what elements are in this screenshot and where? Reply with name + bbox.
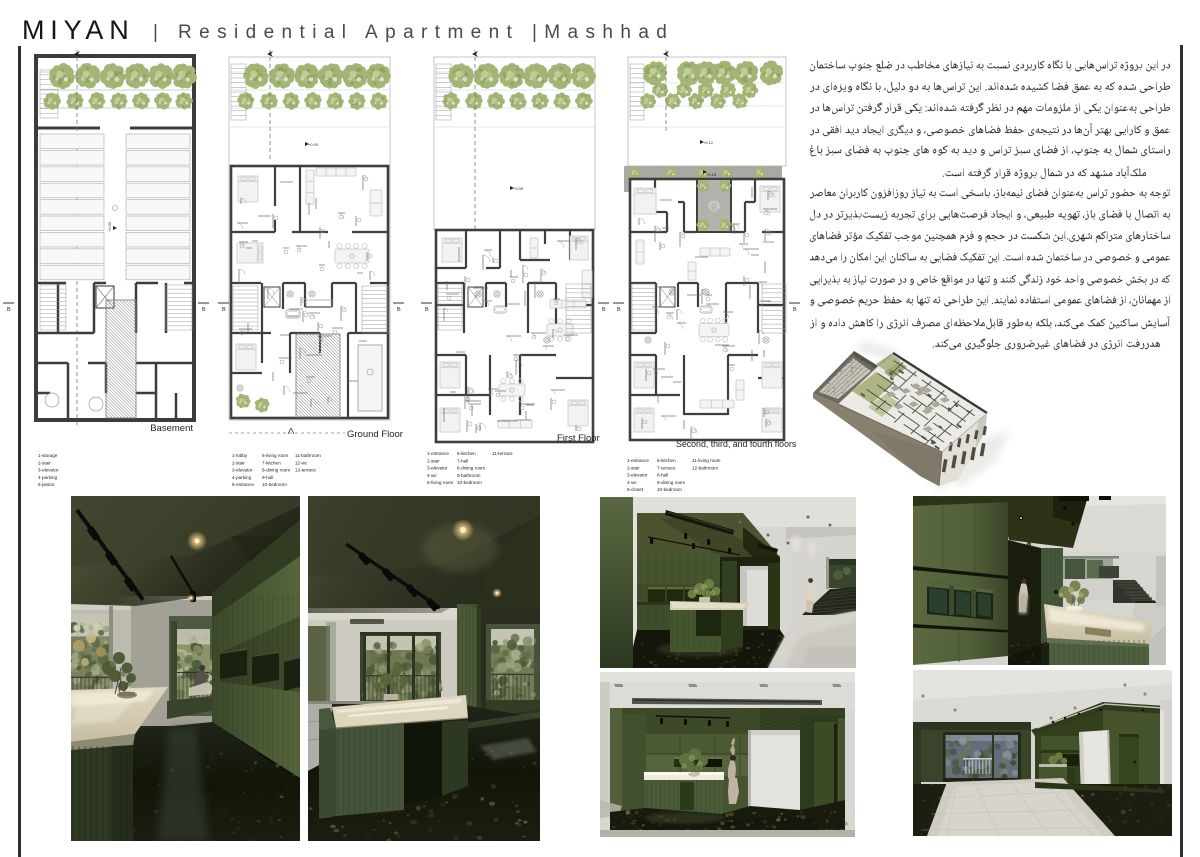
svg-text:Basement: Basement: [150, 423, 193, 434]
svg-text:10-bedroom: 10-bedroom: [657, 487, 682, 492]
svg-text:+9.18: +9.18: [706, 172, 717, 177]
svg-text:1-storage: 1-storage: [38, 453, 58, 458]
svg-text:5-closet: 5-closet: [627, 487, 644, 492]
svg-text:10-bedroom: 10-bedroom: [262, 482, 287, 487]
svg-text:First Floor: First Floor: [557, 433, 600, 444]
svg-text:7-kitchen: 7-kitchen: [262, 460, 281, 465]
svg-text:3-elevator: 3-elevator: [232, 468, 253, 473]
svg-text:4-parking: 4-parking: [232, 475, 252, 480]
svg-text:7-terrace: 7-terrace: [657, 465, 676, 470]
svg-text:11-terrace: 11-terrace: [492, 451, 513, 456]
svg-text:+0.00: +0.00: [107, 221, 112, 232]
svg-text:3-elevator: 3-elevator: [38, 468, 59, 473]
svg-text:+6.12: +6.12: [703, 140, 714, 145]
svg-text:6-kitchen: 6-kitchen: [657, 458, 676, 463]
svg-text:8-dining room: 8-dining room: [262, 468, 290, 473]
svg-text:B: B: [425, 307, 429, 313]
svg-text:11-bathroom: 11-bathroom: [295, 453, 321, 458]
svg-text:5-janitor: 5-janitor: [38, 482, 55, 487]
svg-text:7-hall: 7-hall: [457, 458, 468, 463]
svg-text:2-stair: 2-stair: [627, 465, 640, 470]
svg-text:1-lobby: 1-lobby: [232, 453, 248, 458]
svg-text:9-dining room: 9-dining room: [657, 480, 685, 485]
svg-text:B: B: [222, 307, 226, 313]
svg-text:1-entrance: 1-entrance: [427, 451, 449, 456]
svg-text:9-bathroom: 9-bathroom: [457, 473, 481, 478]
svg-text:4-wc: 4-wc: [427, 473, 437, 478]
svg-text:B: B: [7, 307, 11, 313]
svg-text:4-wc: 4-wc: [627, 480, 637, 485]
svg-text:6-kitchen: 6-kitchen: [457, 451, 476, 456]
svg-text:12-bathroom: 12-bathroom: [692, 465, 718, 470]
svg-text:11-living room: 11-living room: [692, 458, 721, 463]
svg-text:1-entrance: 1-entrance: [627, 458, 649, 463]
svg-text:8-dining room: 8-dining room: [457, 466, 485, 471]
svg-text:13-terrace: 13-terrace: [295, 468, 316, 473]
svg-text:3-elevator: 3-elevator: [427, 466, 448, 471]
svg-text:5-entrance: 5-entrance: [232, 482, 254, 487]
svg-text:5-living room: 5-living room: [427, 480, 453, 485]
svg-text:2-stair: 2-stair: [232, 460, 245, 465]
svg-text:+3.06: +3.06: [513, 186, 524, 191]
svg-text:Ground Floor: Ground Floor: [347, 429, 403, 440]
svg-text:3-elevator: 3-elevator: [627, 473, 648, 478]
svg-text:4-parking: 4-parking: [38, 475, 58, 480]
svg-text:12-wc: 12-wc: [295, 460, 308, 465]
svg-text:B: B: [617, 307, 621, 313]
svg-text:2-stair: 2-stair: [38, 460, 51, 465]
svg-text:B: B: [397, 307, 401, 313]
svg-text:8-hall: 8-hall: [657, 473, 668, 478]
svg-text:B: B: [602, 307, 606, 313]
svg-text:B: B: [202, 307, 206, 313]
svg-text:9-hall: 9-hall: [262, 475, 273, 480]
svg-text:+0.00: +0.00: [308, 142, 319, 147]
svg-text:Second, third, and fourth floo: Second, third, and fourth floors: [676, 439, 797, 449]
svg-text:10-bedroom: 10-bedroom: [457, 480, 482, 485]
svg-text:B: B: [793, 307, 797, 313]
svg-text:6-living room: 6-living room: [262, 453, 288, 458]
svg-text:2-stair: 2-stair: [427, 458, 440, 463]
